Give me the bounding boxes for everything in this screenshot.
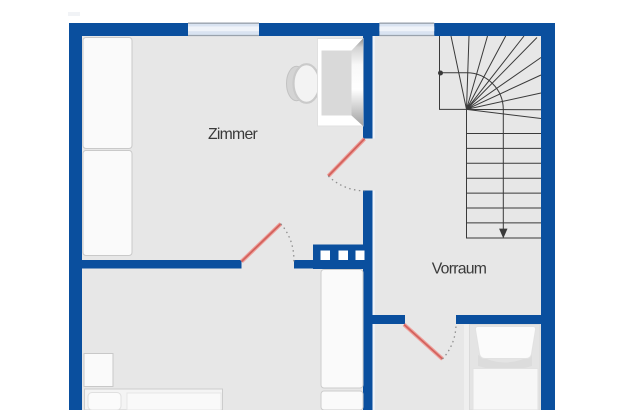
svg-text:Vorraum: Vorraum — [432, 261, 487, 278]
svg-text:Zimmer: Zimmer — [208, 126, 258, 143]
